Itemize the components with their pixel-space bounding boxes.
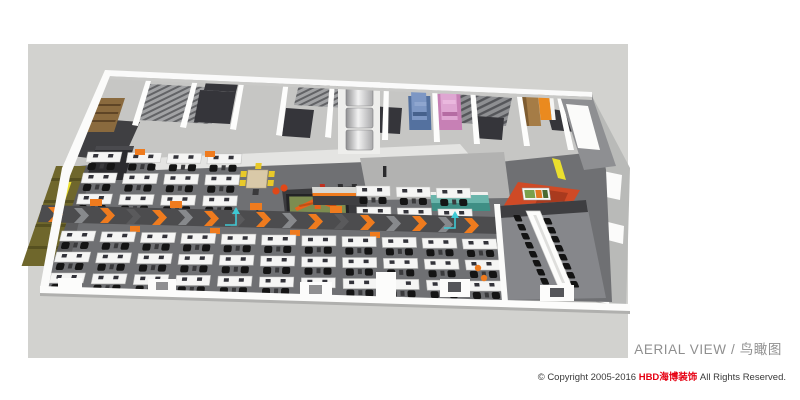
brand-name: HBD海博装饰 xyxy=(639,372,698,383)
caption-separator: / xyxy=(727,342,740,357)
presentation-slide: 3 xyxy=(0,0,800,400)
caption-zh: 鸟瞰图 xyxy=(740,342,782,357)
orange-task-chair xyxy=(475,265,481,271)
blue-shelf-unit xyxy=(408,92,431,130)
copyright-suffix: All Rights Reserved. xyxy=(697,372,786,383)
copyright-line: © Copyright 2005-2016 HBD海博装饰 All Rights… xyxy=(538,369,786,383)
caption-en: AERIAL VIEW xyxy=(634,342,726,357)
slide-caption: AERIAL VIEW / 鸟瞰图 xyxy=(634,338,782,358)
pink-shelf-unit xyxy=(436,90,462,130)
person-figure xyxy=(383,166,386,177)
orange-lounge-chair xyxy=(280,184,287,191)
copyright-prefix: © Copyright 2005-2016 xyxy=(538,372,639,383)
elevator-core xyxy=(338,82,380,154)
orange-task-chair xyxy=(481,275,487,281)
orange-lounge-chair xyxy=(272,187,279,194)
